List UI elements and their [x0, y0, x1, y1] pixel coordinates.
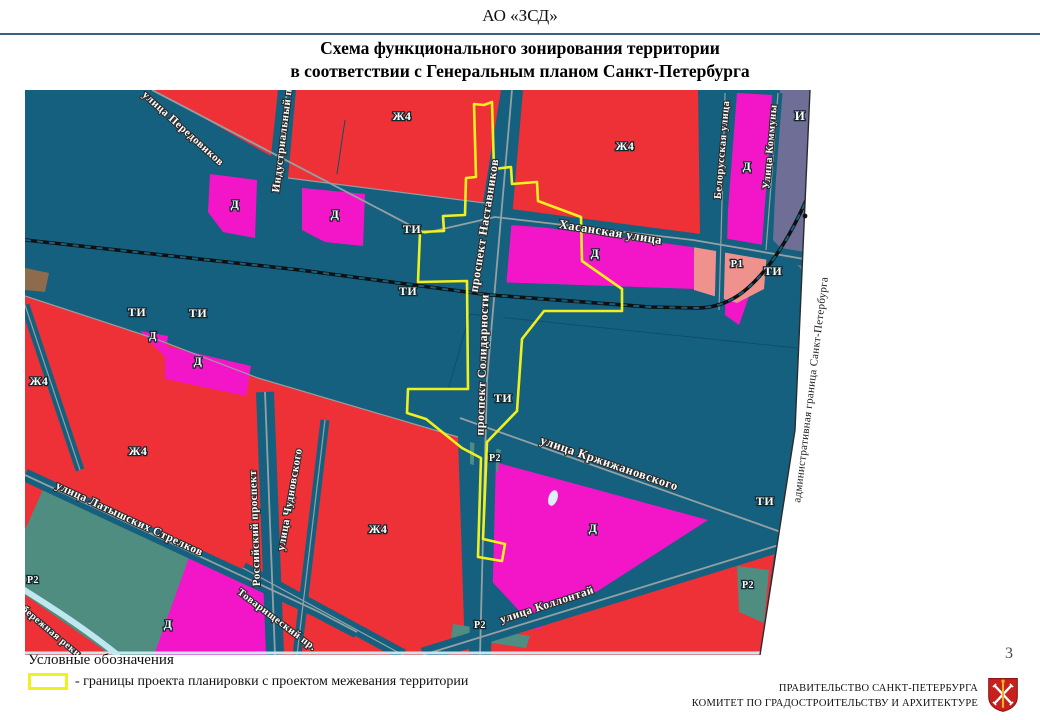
- zone-label: Р2: [474, 620, 486, 631]
- zone-label: Р1: [731, 259, 744, 270]
- zone-label: И: [795, 108, 806, 123]
- zone-label: Д: [591, 246, 600, 260]
- zoning-map-canvas: Ж4Ж4Ж4Ж4Ж4ДДДДДДДДТИТИТИТИТИТИТИР1Р2Р2Р2…: [25, 90, 830, 655]
- footer-line1: ПРАВИТЕЛЬСТВО САНКТ-ПЕТЕРБУРГА: [692, 681, 978, 696]
- project-boundary-swatch: [28, 673, 68, 690]
- footer-line2: КОМИТЕТ ПО ГРАДОСТРОИТЕЛЬСТВУ И АРХИТЕКТ…: [692, 696, 978, 711]
- boundary-marker-dot: [803, 214, 808, 219]
- legend: Условные обозначения - границы проекта п…: [28, 652, 468, 690]
- zone-label: Р2: [742, 580, 754, 591]
- zone-label: Ж4: [393, 109, 412, 123]
- zone-label: Д: [149, 331, 157, 342]
- zone-label: ТИ: [756, 494, 775, 508]
- zone-label: ТИ: [189, 306, 208, 320]
- page-number: 3: [1005, 645, 1013, 663]
- zone-label: ТИ: [494, 391, 513, 405]
- zoning-map: Ж4Ж4Ж4Ж4Ж4ДДДДДДДДТИТИТИТИТИТИТИР1Р2Р2Р2…: [25, 90, 830, 655]
- footer: ПРАВИТЕЛЬСТВО САНКТ-ПЕТЕРБУРГА КОМИТЕТ П…: [692, 681, 978, 711]
- zone-label: Ж4: [30, 374, 49, 388]
- zone-label: Д: [164, 617, 173, 631]
- legend-boundary-label: - границы проекта планировки с проектом …: [75, 674, 468, 690]
- zone-label: ТИ: [764, 264, 783, 278]
- legend-heading: Условные обозначения: [28, 652, 468, 669]
- slide: АО «ЗСД» Схема функционального зонирован…: [0, 0, 1040, 720]
- zone-label: ТИ: [403, 222, 422, 236]
- page-title-line1: Схема функционального зонирования террит…: [0, 37, 1040, 60]
- zone-label: Д: [194, 354, 203, 368]
- zone-label: Д: [231, 197, 240, 211]
- zone-label: Р2: [27, 575, 39, 586]
- zone-label: Ж4: [616, 139, 635, 153]
- legend-row: - границы проекта планировки с проектом …: [28, 673, 468, 690]
- spb-coat-of-arms-icon: [986, 677, 1020, 713]
- org-title: АО «ЗСД»: [0, 6, 1040, 26]
- zone-label: Ж4: [369, 522, 388, 536]
- header-divider: [0, 33, 1040, 35]
- page-title: Схема функционального зонирования террит…: [0, 37, 1040, 83]
- zone-label: ТИ: [128, 305, 147, 319]
- zone-label: Ж4: [129, 444, 148, 458]
- zone-label: Д: [589, 521, 598, 535]
- zone-label: ТИ: [399, 284, 418, 298]
- page-title-line2: в соответствии с Генеральным планом Санк…: [0, 60, 1040, 83]
- zone-label: Д: [331, 207, 340, 221]
- zone-label: Р2: [489, 453, 501, 464]
- zone-label: Д: [743, 159, 752, 173]
